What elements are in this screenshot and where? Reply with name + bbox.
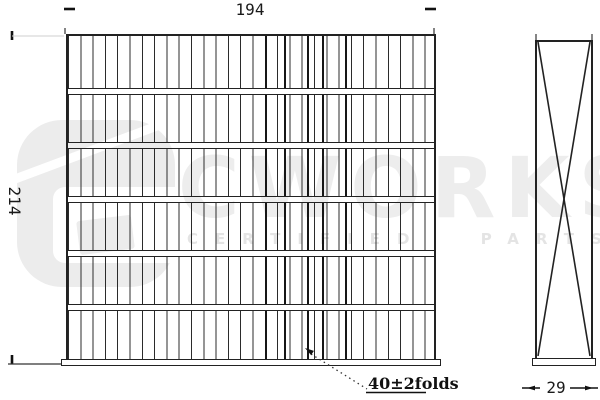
pleat-row — [68, 310, 434, 359]
front-view-pleat-panel — [66, 34, 436, 359]
pleat-row — [68, 202, 434, 251]
pleat-row — [68, 94, 434, 143]
filter-technical-drawing: CWORKS CERTIFIED PARTS — [0, 0, 600, 400]
pleat-row — [68, 148, 434, 197]
pleat-row — [68, 34, 434, 89]
dimension-width-label: 194 — [228, 2, 272, 18]
dimension-depth-label: 29 — [542, 380, 570, 396]
front-view-bottom-cap — [61, 359, 441, 366]
folds-annotation: 40±2folds — [368, 376, 459, 392]
pleat-row — [68, 256, 434, 305]
dimension-height-label: 214 — [6, 179, 22, 223]
side-view-bottom-cap — [532, 358, 596, 366]
side-view-panel — [535, 40, 593, 358]
